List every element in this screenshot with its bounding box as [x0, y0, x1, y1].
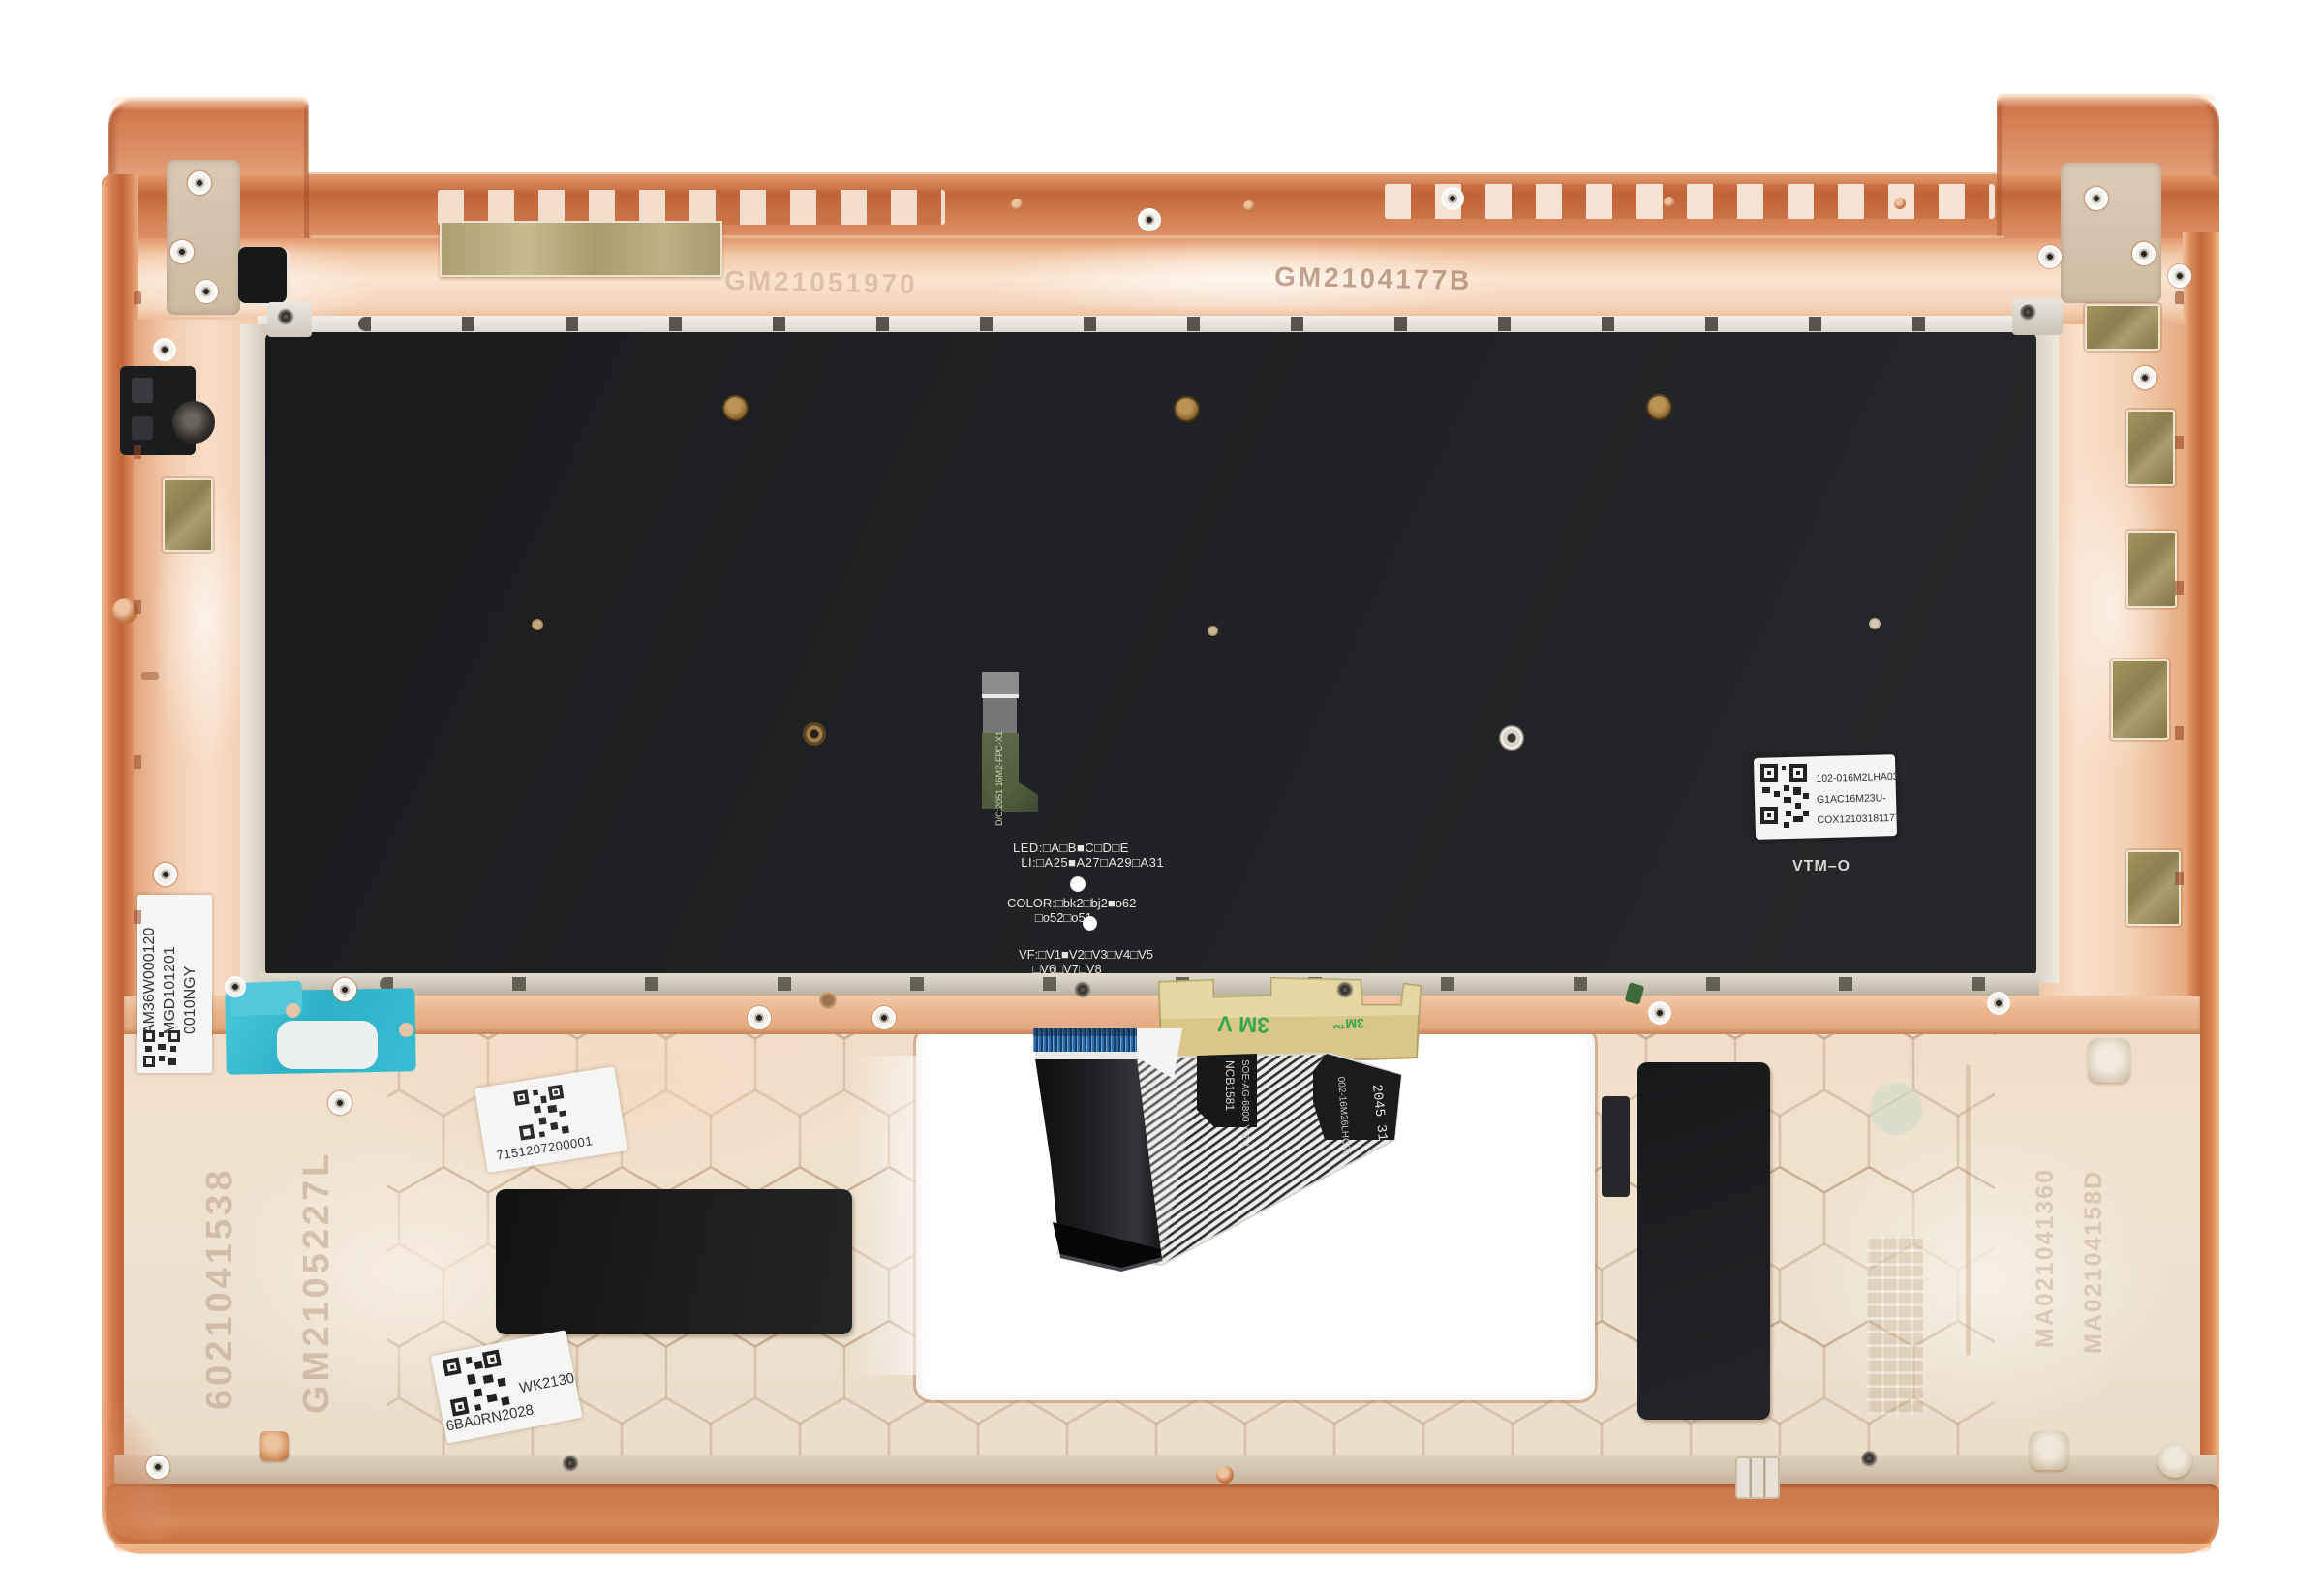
svg-text:SOE-AG-6800 Y 2-1: SOE-AG-6800 Y 2-1 [1239, 1059, 1250, 1148]
svg-text:NCB1581: NCB1581 [1223, 1060, 1237, 1111]
